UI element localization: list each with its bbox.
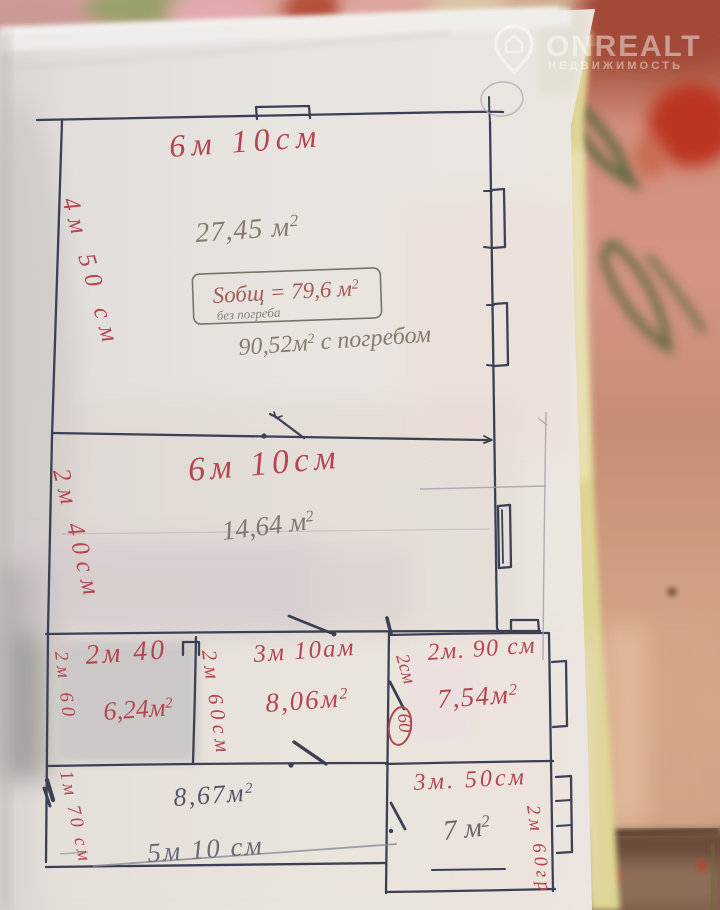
- svg-text:НЕДВИЖИМОСТЬ: НЕДВИЖИМОСТЬ: [548, 60, 683, 72]
- svg-text:7,54м2: 7,54м2: [436, 678, 519, 714]
- svg-text:2м 40: 2м 40: [84, 634, 168, 671]
- svg-text:8,67м2: 8,67м2: [172, 777, 255, 812]
- svg-text:6,24м2: 6,24м2: [102, 692, 174, 726]
- svg-text:8,06м2: 8,06м2: [264, 682, 350, 718]
- svg-text:60: 60: [393, 713, 416, 734]
- svg-text:ONREALT: ONREALT: [546, 30, 701, 63]
